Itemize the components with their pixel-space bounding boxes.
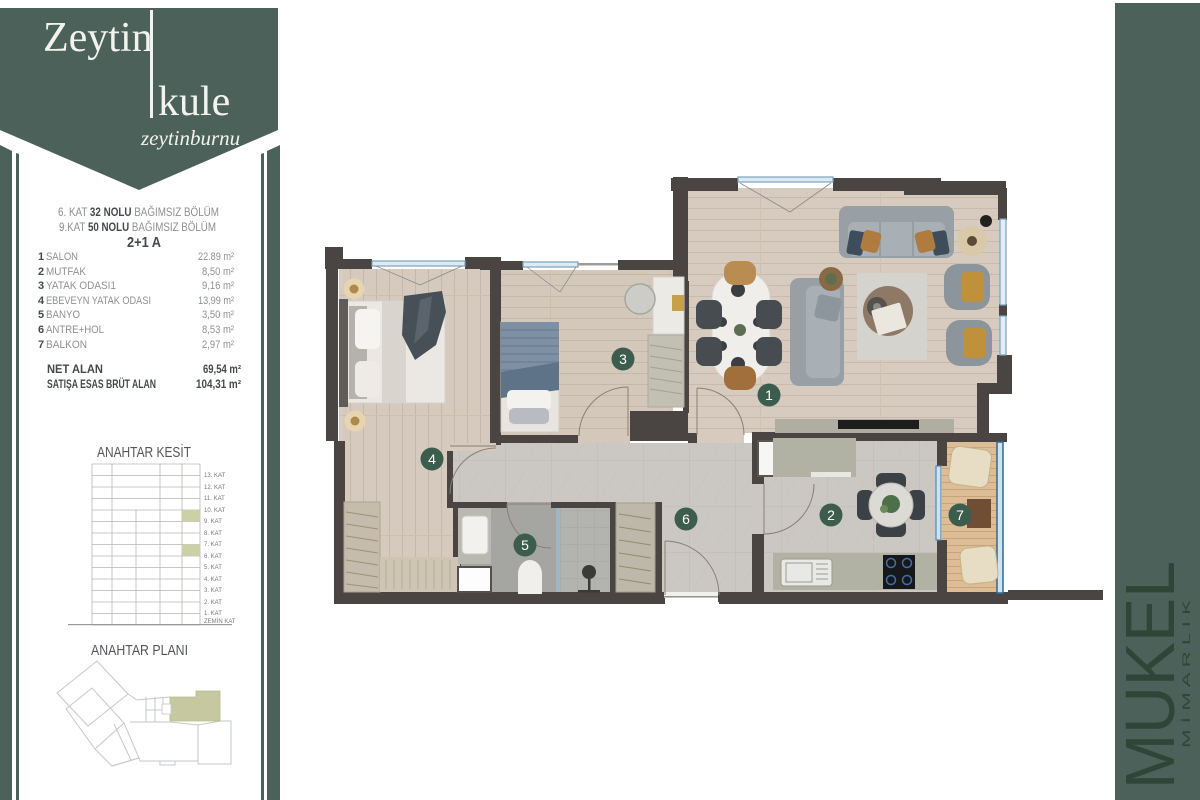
svg-text:3. KAT: 3. KAT [204,588,222,594]
svg-text:8,53 m²: 8,53 m² [202,324,234,336]
svg-text:3,50 m²: 3,50 m² [202,309,234,321]
svg-text:6. KAT: 6. KAT [204,554,222,560]
svg-text:EBEVEYN YATAK ODASI: EBEVEYN YATAK ODASI [46,295,151,307]
svg-text:6. KAT 32 NOLU BAĞIMSIZ BÖLÜM: 6. KAT 32 NOLU BAĞIMSIZ BÖLÜM [58,206,219,219]
svg-text:11. KAT: 11. KAT [204,496,225,502]
svg-text:1: 1 [38,251,44,263]
svg-text:104,31 m²: 104,31 m² [196,379,241,391]
svg-text:2. KAT: 2. KAT [204,600,222,606]
svg-text:9.KAT 50 NOLU BAĞIMSIZ BÖLÜM: 9.KAT 50 NOLU BAĞIMSIZ BÖLÜM [59,221,216,234]
svg-text:YATAK ODASI1: YATAK ODASI1 [46,280,116,292]
svg-text:4: 4 [38,295,45,307]
svg-text:5. KAT: 5. KAT [204,565,222,571]
svg-text:7. KAT: 7. KAT [204,542,222,548]
svg-text:9,16 m²: 9,16 m² [202,280,234,292]
svg-text:NET ALAN: NET ALAN [47,364,103,376]
svg-text:ANAHTAR KESİT: ANAHTAR KESİT [97,443,191,461]
svg-text:4. KAT: 4. KAT [204,577,222,583]
svg-text:ANTRE+HOL: ANTRE+HOL [46,324,104,336]
svg-text:1. KAT: 1. KAT [204,611,222,617]
svg-text:12. KAT: 12. KAT [204,485,226,491]
svg-text:4: 4 [428,451,436,467]
svg-text:ZEMİN KAT: ZEMİN KAT [204,618,236,625]
svg-text:13,99 m²: 13,99 m² [198,295,234,307]
svg-text:5: 5 [38,309,44,321]
svg-text:7: 7 [38,339,44,351]
svg-text:6: 6 [682,511,690,527]
svg-text:2: 2 [827,507,835,523]
svg-text:kule: kule [158,79,230,125]
svg-text:3: 3 [38,280,44,292]
svg-text:8,50 m²: 8,50 m² [202,266,234,278]
svg-text:2: 2 [38,266,44,278]
svg-text:10. KAT: 10. KAT [204,508,226,514]
svg-text:7: 7 [956,507,964,523]
svg-text:2,97 m²: 2,97 m² [202,339,234,351]
svg-text:3: 3 [619,351,627,367]
svg-text:13. KAT: 13. KAT [204,473,226,479]
svg-text:BALKON: BALKON [46,339,87,351]
svg-text:5: 5 [521,537,529,553]
svg-text:zeytinburnu: zeytinburnu [140,126,240,150]
svg-text:BANYO: BANYO [46,309,80,321]
svg-text:8. KAT: 8. KAT [204,531,222,537]
svg-text:SATIŞA ESAS BRÜT ALAN: SATIŞA ESAS BRÜT ALAN [47,378,156,391]
svg-text:22.89 m²: 22.89 m² [198,251,234,263]
svg-text:6: 6 [38,324,44,336]
svg-text:M İ M A R L I K: M İ M A R L I K [1180,599,1193,748]
svg-text:ANAHTAR PLANI: ANAHTAR PLANI [91,643,188,659]
svg-text:MUKEL: MUKEL [1111,561,1189,789]
svg-text:SALON: SALON [46,251,78,263]
svg-text:1: 1 [765,387,773,403]
svg-text:MUTFAK: MUTFAK [46,266,87,278]
svg-text:2+1 A: 2+1 A [127,234,161,251]
svg-text:Zeytin: Zeytin [43,15,153,61]
svg-text:9. KAT: 9. KAT [204,519,222,525]
svg-text:69,54 m²: 69,54 m² [203,364,241,376]
